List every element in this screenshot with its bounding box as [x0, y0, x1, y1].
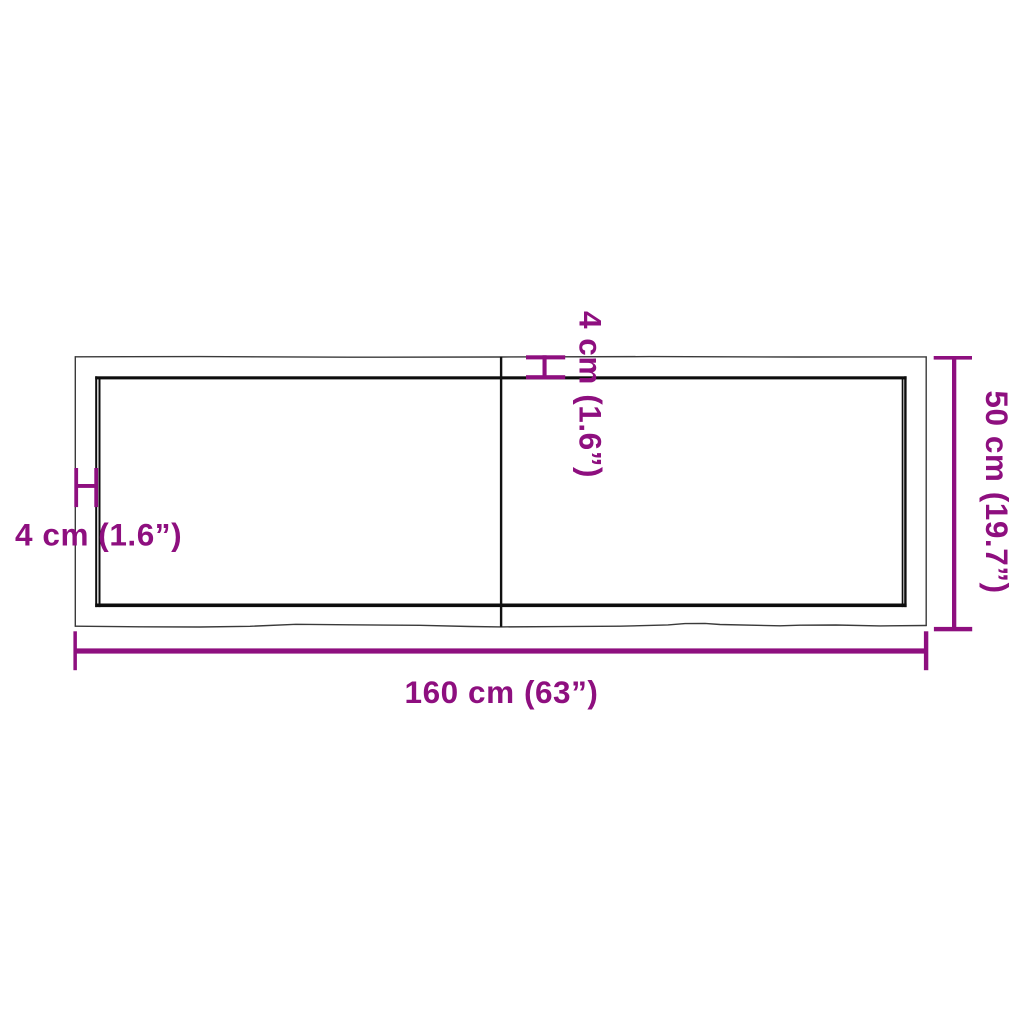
svg-text:160 cm (63”): 160 cm (63”) [405, 674, 599, 710]
svg-text:4 cm (1.6”): 4 cm (1.6”) [572, 311, 608, 478]
svg-text:50 cm (19.7”): 50 cm (19.7”) [979, 390, 1015, 593]
svg-text:4 cm (1.6”): 4 cm (1.6”) [15, 517, 182, 553]
